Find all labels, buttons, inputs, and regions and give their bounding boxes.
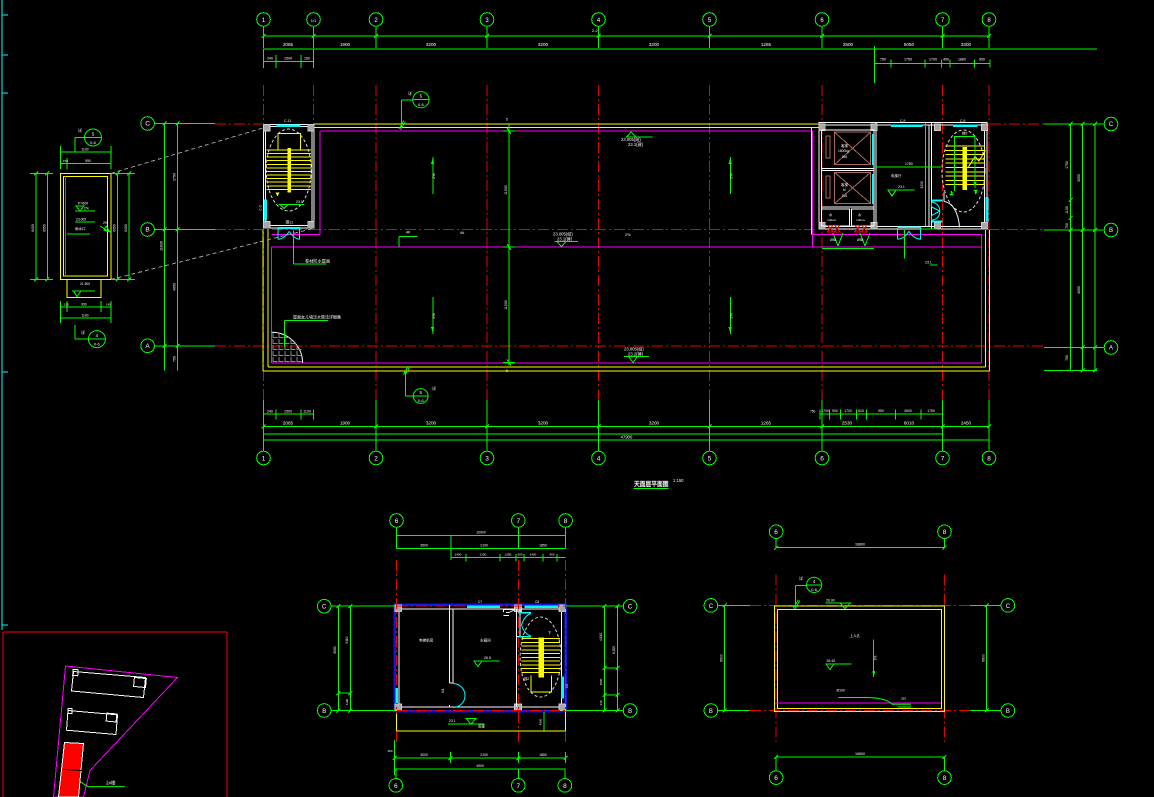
svg-text:Ø58: Ø58 — [830, 238, 836, 242]
svg-text:1750: 1750 — [1065, 161, 1069, 169]
svg-text:A: A — [1109, 346, 1113, 352]
svg-text:700: 700 — [1065, 223, 1069, 229]
svg-text:m3box: m3box — [827, 218, 837, 222]
svg-text:4500: 4500 — [599, 678, 603, 685]
svg-text:1100: 1100 — [81, 148, 88, 152]
svg-text:16800: 16800 — [855, 543, 865, 547]
svg-text:C-9: C-9 — [900, 119, 905, 123]
svg-text:A: A — [145, 343, 150, 350]
svg-text:4#: 4# — [406, 230, 411, 235]
svg-text:1860: 1860 — [958, 58, 966, 62]
svg-text:0-6: 0-6 — [418, 398, 425, 403]
svg-text:2#楼: 2#楼 — [106, 780, 116, 787]
svg-text:详: 详 — [81, 329, 85, 335]
svg-text:2100: 2100 — [480, 544, 488, 548]
svg-text:7: 7 — [516, 518, 520, 525]
svg-text:16800: 16800 — [855, 752, 865, 756]
svg-text:C-9: C-9 — [960, 119, 965, 123]
svg-text:160: 160 — [304, 57, 310, 61]
svg-text:23.005: 23.005 — [76, 218, 86, 222]
svg-text:500: 500 — [517, 553, 522, 557]
svg-text:23.1: 23.1 — [449, 719, 456, 723]
svg-text:详: 详 — [432, 385, 436, 391]
svg-text:750: 750 — [173, 356, 177, 362]
svg-text:1900: 1900 — [340, 42, 351, 47]
svg-text:8: 8 — [564, 518, 568, 525]
svg-text:1750: 1750 — [927, 409, 935, 413]
svg-text:6: 6 — [820, 456, 824, 463]
svg-text:4: 4 — [597, 456, 601, 463]
svg-text:0-6: 0-6 — [94, 342, 101, 347]
svg-text:0-6: 0-6 — [418, 102, 425, 107]
svg-text:B: B — [145, 227, 149, 234]
svg-text:950: 950 — [878, 409, 884, 413]
svg-text:11500: 11500 — [504, 300, 508, 310]
svg-text:23.1: 23.1 — [925, 261, 932, 265]
svg-text:23.1: 23.1 — [296, 200, 303, 204]
svg-text:150: 150 — [64, 303, 69, 307]
svg-text:P=600: P=600 — [78, 202, 88, 206]
svg-text:5: 5 — [506, 118, 508, 122]
svg-text:1900: 1900 — [340, 421, 351, 426]
svg-text:B: B — [1006, 709, 1010, 715]
svg-text:1400: 1400 — [530, 553, 537, 557]
svg-text:C-3: C-3 — [259, 205, 263, 210]
svg-text:1400: 1400 — [455, 553, 462, 557]
svg-text:6050: 6050 — [42, 224, 46, 232]
svg-text:C: C — [322, 605, 327, 611]
svg-text:详: 详 — [799, 575, 803, 581]
svg-text:3: 3 — [485, 456, 489, 463]
svg-text:2%: 2% — [103, 221, 108, 225]
svg-text:0-6: 0-6 — [811, 587, 818, 592]
svg-text:3500: 3500 — [420, 544, 428, 548]
svg-text:C: C — [709, 604, 714, 610]
svg-text:1850: 1850 — [539, 544, 547, 548]
svg-text:1750: 1750 — [904, 58, 912, 62]
svg-text:2530: 2530 — [842, 421, 853, 426]
svg-text:客梯: 客梯 — [841, 143, 849, 148]
svg-text:Ø58: Ø58 — [857, 238, 863, 242]
svg-text:2065: 2065 — [283, 421, 294, 426]
svg-text:1100: 1100 — [1065, 206, 1069, 214]
svg-text:1780: 1780 — [905, 162, 913, 166]
svg-text:屋面女儿墙泛水做法详图集: 屋面女儿墙泛水做法详图集 — [293, 314, 341, 320]
svg-text:5: 5 — [506, 369, 508, 373]
svg-text:3200: 3200 — [649, 42, 660, 47]
svg-text:6050: 6050 — [113, 224, 117, 232]
svg-text:1850: 1850 — [539, 753, 547, 757]
svg-text:M1: M1 — [441, 688, 445, 693]
svg-text:梯11: 梯11 — [286, 220, 294, 225]
svg-text:6900: 6900 — [981, 654, 985, 662]
svg-text:雨水口: 雨水口 — [75, 226, 86, 231]
svg-text:B: B — [709, 709, 713, 715]
svg-text:1280: 1280 — [505, 553, 512, 557]
svg-text:C8: C8 — [535, 600, 539, 604]
svg-text:3200: 3200 — [426, 421, 437, 426]
svg-text:2450: 2450 — [961, 421, 972, 426]
svg-text:145: 145 — [106, 303, 111, 307]
svg-text:4900: 4900 — [476, 764, 484, 768]
svg-text:8: 8 — [943, 529, 947, 536]
svg-text:1100: 1100 — [303, 410, 311, 414]
svg-text:2%: 2% — [84, 207, 89, 211]
svg-text:900: 900 — [832, 409, 838, 413]
svg-text:6,900: 6,900 — [612, 646, 616, 654]
svg-text:1/1: 1/1 — [311, 18, 317, 23]
svg-text:1: 1 — [262, 456, 266, 463]
svg-text:11630: 11630 — [160, 241, 164, 251]
svg-text:1:150: 1:150 — [673, 478, 684, 483]
svg-text:3050: 3050 — [1077, 174, 1081, 182]
svg-text:梯2: 梯2 — [962, 131, 968, 136]
svg-text:21.500: 21.500 — [80, 282, 90, 286]
svg-text:B: B — [322, 709, 326, 715]
svg-text:400: 400 — [549, 553, 554, 557]
svg-text:3200: 3200 — [426, 42, 437, 47]
svg-text:450: 450 — [943, 58, 949, 62]
svg-text:8: 8 — [943, 775, 947, 782]
svg-text:1600kg: 1600kg — [838, 149, 849, 153]
svg-text:2%: 2% — [730, 313, 734, 319]
svg-text:4500: 4500 — [904, 409, 912, 413]
svg-text:C: C — [628, 605, 633, 611]
svg-text:2%: 2% — [874, 656, 878, 661]
svg-text:详: 详 — [408, 90, 412, 96]
svg-text:水箱间: 水箱间 — [480, 638, 491, 643]
svg-text:10900: 10900 — [476, 531, 486, 535]
svg-text:11500: 11500 — [504, 185, 508, 195]
svg-text:6: 6 — [395, 518, 399, 525]
svg-text:1500: 1500 — [284, 410, 292, 414]
svg-text:250: 250 — [901, 697, 906, 701]
svg-text:3000: 3000 — [420, 753, 428, 757]
svg-text:26.40: 26.40 — [826, 659, 835, 663]
svg-text:240: 240 — [267, 410, 273, 414]
svg-text:1500: 1500 — [284, 57, 292, 61]
svg-text:7: 7 — [516, 783, 520, 790]
svg-text:2%: 2% — [432, 313, 436, 319]
svg-text:950: 950 — [81, 303, 87, 307]
svg-text:电梯厅: 电梯厅 — [891, 173, 902, 178]
svg-text:4500: 4500 — [539, 718, 543, 725]
svg-text:615: 615 — [858, 409, 864, 413]
svg-text:1700: 1700 — [929, 58, 937, 62]
svg-text:B: B — [628, 709, 632, 715]
svg-text:详: 详 — [78, 127, 82, 133]
svg-text:3200: 3200 — [649, 421, 660, 426]
svg-text:240: 240 — [267, 57, 273, 61]
svg-text:340: 340 — [599, 700, 603, 705]
svg-text:1700: 1700 — [844, 409, 852, 413]
svg-text:47900: 47900 — [621, 435, 633, 440]
svg-text:2100: 2100 — [480, 753, 488, 757]
svg-text:0#1: 0#1 — [842, 194, 848, 198]
svg-text:2%: 2% — [625, 233, 631, 237]
svg-text:M: M — [843, 188, 846, 192]
svg-text:客梯: 客梯 — [841, 182, 849, 187]
svg-text:950: 950 — [979, 58, 985, 62]
svg-text:150: 150 — [63, 159, 68, 163]
svg-text:6: 6 — [774, 775, 778, 782]
svg-text:460: 460 — [387, 749, 392, 753]
svg-text:1100: 1100 — [81, 313, 88, 317]
svg-text:1265: 1265 — [761, 42, 772, 47]
svg-text:1700: 1700 — [821, 409, 829, 413]
svg-text:750: 750 — [1065, 355, 1069, 361]
svg-text:3335: 3335 — [920, 181, 924, 189]
svg-text:6900: 6900 — [720, 654, 724, 662]
svg-text:雨蓬: 雨蓬 — [478, 724, 485, 729]
svg-text:6450: 6450 — [124, 224, 128, 232]
svg-text:电梯机房: 电梯机房 — [419, 638, 434, 643]
svg-text:26.5: 26.5 — [484, 656, 491, 660]
svg-text:5110: 5110 — [345, 636, 349, 643]
svg-text:23.1(建): 23.1(建) — [628, 141, 644, 148]
svg-text:C7: C7 — [478, 600, 482, 604]
svg-text:天面层平面图: 天面层平面图 — [634, 479, 669, 488]
svg-text:5: 5 — [708, 456, 712, 463]
svg-text:8: 8 — [987, 456, 991, 463]
svg-text:卷材防水屋面: 卷材防水屋面 — [305, 258, 330, 265]
svg-text:3300: 3300 — [961, 42, 972, 47]
svg-text:7: 7 — [941, 456, 945, 463]
svg-text:4,810: 4,810 — [599, 633, 603, 641]
svg-text:上人孔: 上人孔 — [850, 633, 861, 638]
svg-text:0#1: 0#1 — [842, 155, 848, 159]
svg-text:1190: 1190 — [345, 698, 349, 705]
svg-text:Ø100: Ø100 — [837, 689, 845, 693]
svg-text:2: 2 — [374, 456, 378, 463]
svg-text:0-6: 0-6 — [90, 140, 97, 145]
svg-text:8: 8 — [563, 783, 567, 790]
svg-text:3200: 3200 — [538, 42, 549, 47]
svg-text:6: 6 — [774, 529, 778, 536]
svg-text:C: C — [1006, 604, 1011, 610]
svg-text:2%: 2% — [730, 173, 734, 179]
svg-text:6450: 6450 — [31, 224, 35, 232]
svg-text:4050: 4050 — [1077, 286, 1081, 294]
svg-text:C: C — [145, 121, 150, 128]
svg-text:23.1: 23.1 — [898, 185, 905, 189]
svg-text:2%: 2% — [432, 173, 436, 179]
svg-text:950: 950 — [85, 159, 91, 163]
svg-text:2150: 2150 — [480, 553, 487, 557]
svg-text:B: B — [1109, 228, 1113, 234]
svg-text:2-2: 2-2 — [592, 28, 599, 33]
svg-text:4050: 4050 — [173, 283, 177, 291]
svg-text:6010: 6010 — [904, 421, 915, 426]
svg-text:3200: 3200 — [538, 421, 549, 426]
svg-text:6900: 6900 — [333, 646, 337, 653]
svg-text:6: 6 — [394, 783, 398, 790]
svg-text:C-11: C-11 — [284, 119, 291, 123]
svg-text:C: C — [1109, 122, 1114, 128]
svg-text:梯2: 梯2 — [524, 676, 529, 681]
svg-text:26.90: 26.90 — [826, 599, 835, 603]
svg-text:2500: 2500 — [843, 42, 854, 47]
svg-text:C6: C6 — [565, 684, 569, 688]
svg-text:750: 750 — [880, 58, 886, 62]
svg-text:1265: 1265 — [761, 421, 772, 426]
svg-text:750: 750 — [810, 410, 816, 414]
svg-text:1750: 1750 — [173, 173, 177, 181]
svg-text:m3box: m3box — [856, 218, 866, 222]
svg-text:2065: 2065 — [283, 42, 294, 47]
svg-text:5050: 5050 — [904, 42, 915, 47]
